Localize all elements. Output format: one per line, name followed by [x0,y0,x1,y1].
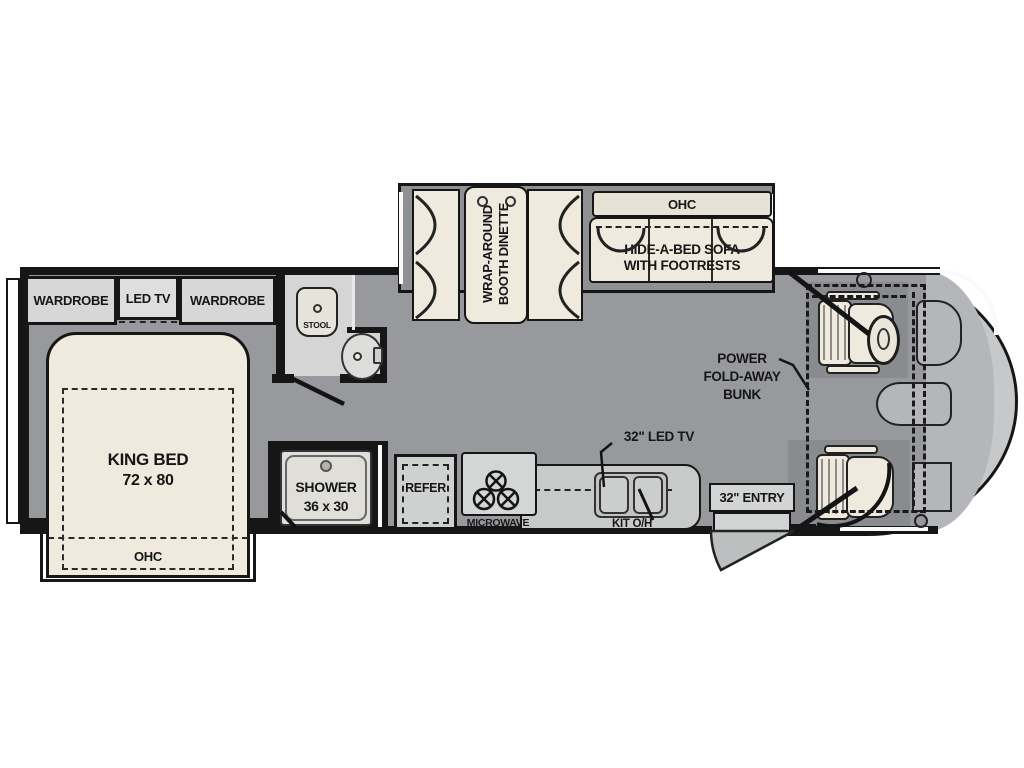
kitchen-sink-bowl-right [633,476,663,514]
shower-wall-strip [378,445,382,527]
refrigerator-label: REFER [394,478,457,498]
sofa-fold-dash [596,226,768,229]
bunk-label-line3: BUNK [723,386,761,404]
rv-floor-plan: WRAP-AROUND BOOTH DINETTE OHC HIDE-A-BED… [0,0,1024,768]
bath-wall-stub [272,374,294,383]
led-tv-label: LED TV [117,276,179,320]
sink-drain-icon [353,352,362,361]
bed-ohc-label: OHC [62,546,234,566]
king-bed-name: KING BED [108,449,189,471]
bunk-outline-dashed [806,284,926,513]
dinette-bench-right [527,189,583,321]
dinette-label: WRAP-AROUND BOOTH DINETTE [466,189,526,319]
wardrobe-right-label: WARDROBE [179,276,276,325]
sink-faucet-icon [373,347,383,364]
stove-icon [461,452,537,516]
dinette-bench-left [412,189,460,321]
led-tv-dash [119,321,177,324]
bath-wall-left [276,275,285,378]
step-well-icon [914,514,928,528]
sofa-label: HIDE-A-BED SOFA WITH FOOTRESTS [592,238,772,278]
shower-drain-icon [320,460,332,472]
kit-oh-label: KIT O/H [594,516,670,531]
entry-door-swing [711,531,794,570]
slide-window-left [399,192,403,284]
shower-size: 36 x 30 [304,497,349,516]
shower-label: SHOWER 36 x 30 [280,477,372,517]
wall-top-left [20,267,402,275]
microwave-label: MICROWAVE [458,515,538,530]
bunk-label-line1: POWER [717,350,767,368]
windshield-bottom-trim [840,527,928,531]
bed-slide-stub-right [250,518,268,529]
entry-label: 32" ENTRY [709,483,795,512]
rear-window [6,278,20,524]
bath-partition [352,275,355,330]
wardrobe-left-label: WARDROBE [25,276,117,325]
king-bed-label: KING BED 72 x 80 [62,446,234,494]
bunk-label-line2: FOLD-AWAY [703,368,780,386]
bunk-inner-dash-h [812,295,906,298]
bunk-label: POWER FOLD-AWAY BUNK [692,349,792,405]
bed-slide-stub-left [28,518,46,529]
bunk-inner-dash-v [912,292,915,506]
king-bed-size: 72 x 80 [122,471,173,492]
wall-entry-post [788,524,816,534]
sofa-ohc-label: OHC [592,191,772,217]
dinette-label-line1: WRAP-AROUND [480,205,496,303]
tv-label: 32" LED TV [610,428,708,444]
bed-ohc-dash [48,537,248,540]
toilet-flush-icon [313,304,322,313]
dinette-label-line2: BOOTH DINETTE [496,203,512,305]
kitchen-sink-bowl-left [599,476,629,514]
sofa-label-line2: WITH FOOTRESTS [624,258,741,274]
entry-step [713,512,791,536]
sofa-label-line1: HIDE-A-BED SOFA [624,242,740,258]
toilet-label: STOOL [296,318,338,332]
shower-name: SHOWER [295,478,356,497]
